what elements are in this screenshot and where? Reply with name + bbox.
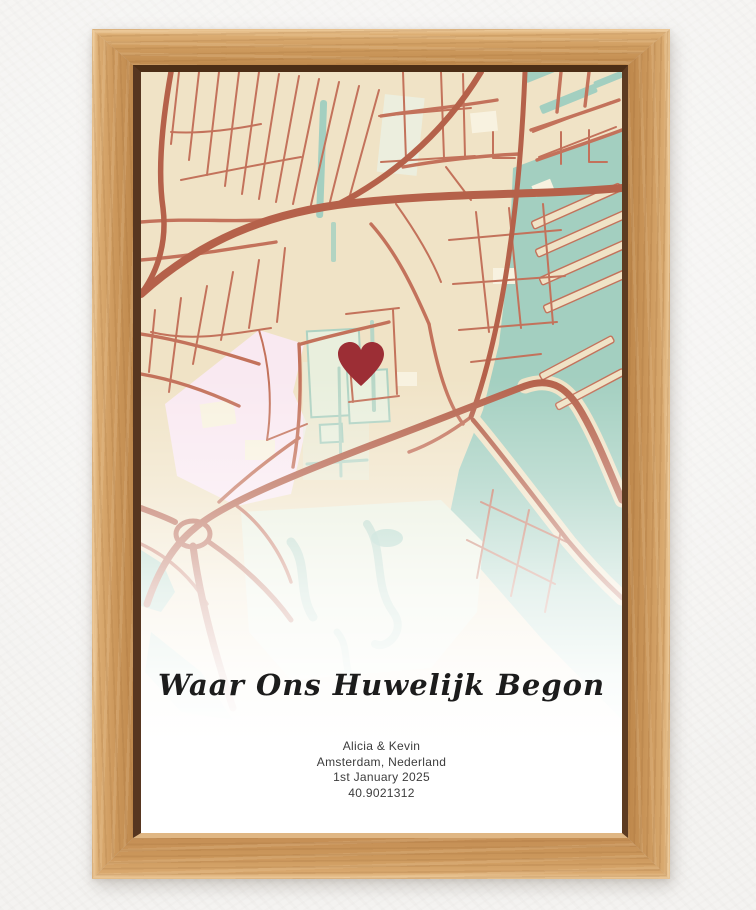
map-print: Waar Ons Huwelijk Begon Alicia & Kevin A… xyxy=(133,65,628,838)
frame-edge-bottom xyxy=(92,838,670,879)
frame-edge-right xyxy=(628,29,670,879)
city-map xyxy=(141,72,622,833)
poster-date: 1st January 2025 xyxy=(141,770,622,786)
frame-edge-top xyxy=(92,29,670,65)
poster-location: Amsterdam, Nederland xyxy=(141,755,622,771)
poster-credits: Alicia & Kevin Amsterdam, Nederland 1st … xyxy=(141,739,622,801)
map-title: Waar Ons Huwelijk Begon xyxy=(141,668,622,702)
poster-names: Alicia & Kevin xyxy=(141,739,622,755)
poster-frame: Waar Ons Huwelijk Begon Alicia & Kevin A… xyxy=(92,29,670,879)
poster-coordinates: 40.9021312 xyxy=(141,786,622,802)
frame-edge-left xyxy=(92,29,133,879)
wall: Waar Ons Huwelijk Begon Alicia & Kevin A… xyxy=(0,0,756,910)
